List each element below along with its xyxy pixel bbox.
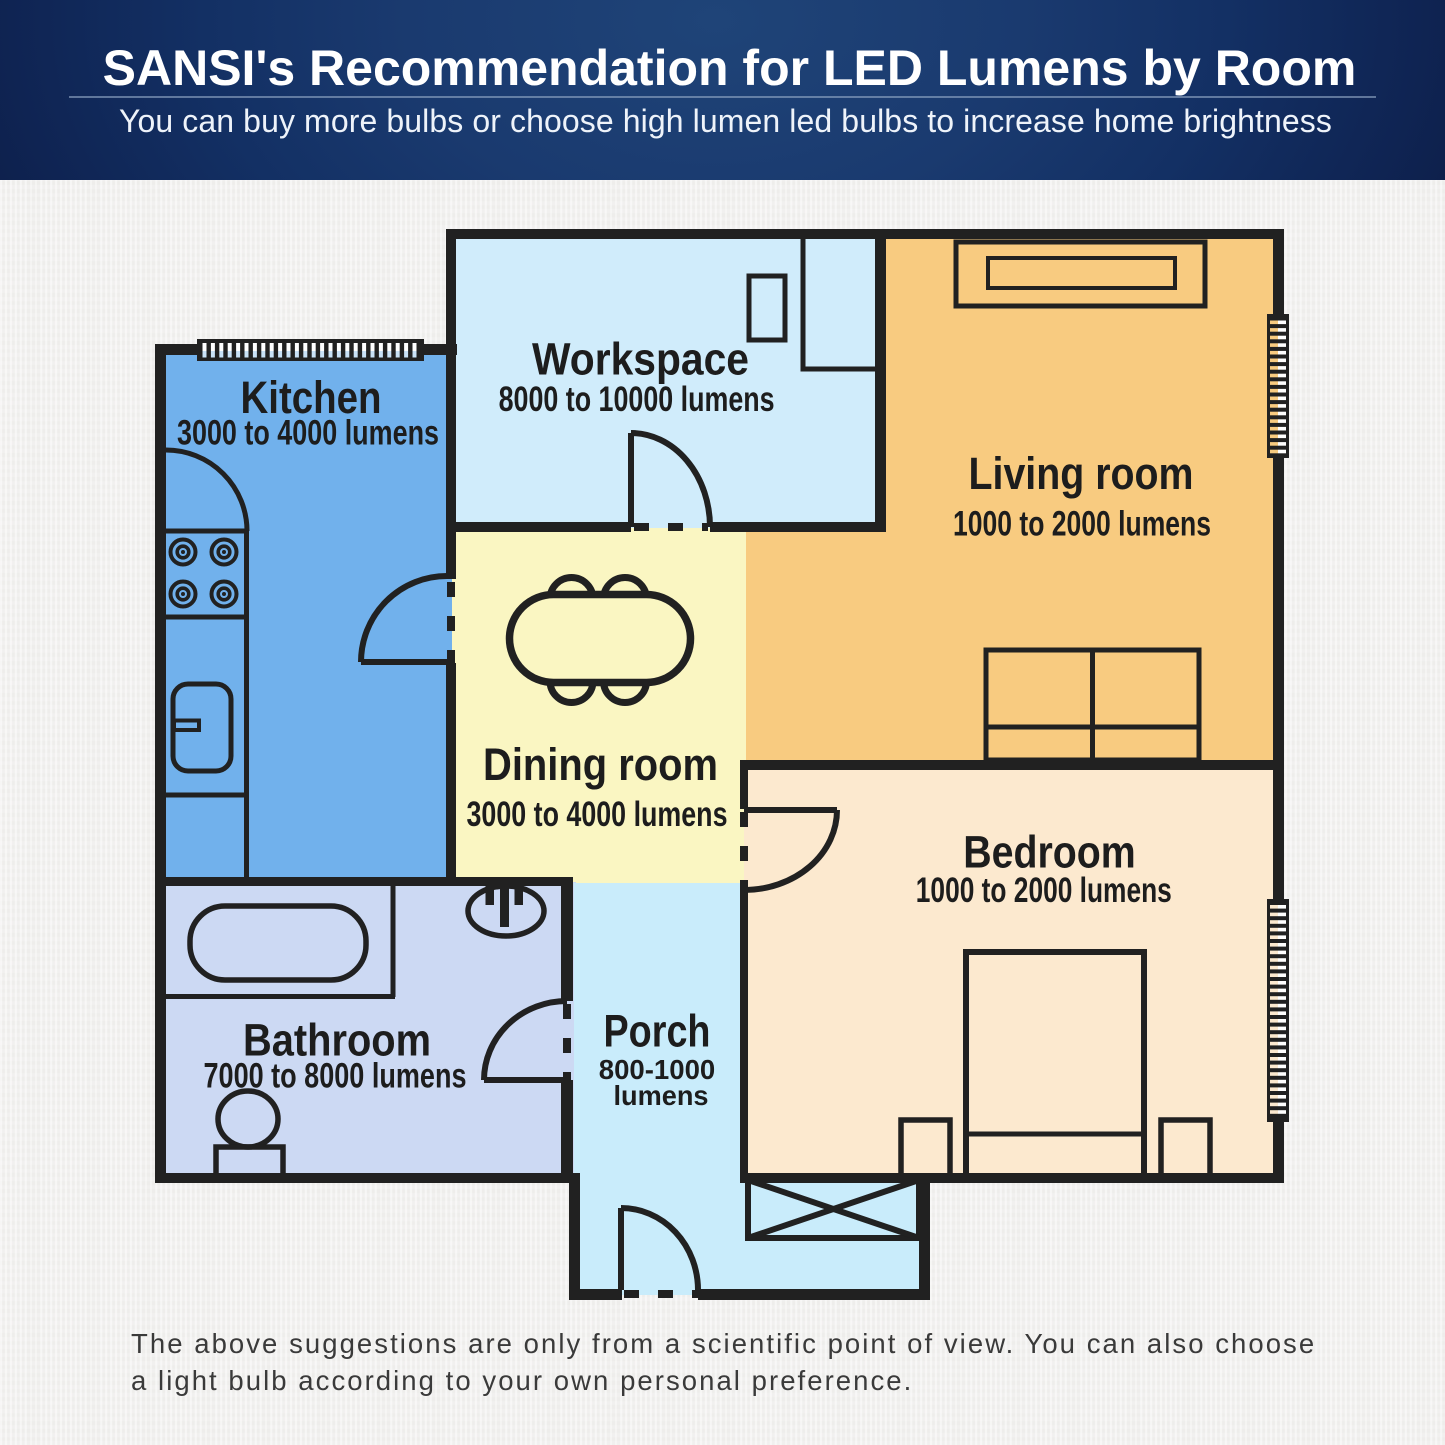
svg-text:Bedroom: Bedroom bbox=[963, 827, 1136, 878]
svg-text:7000 to 8000 lumens: 7000 to 8000 lumens bbox=[204, 1057, 467, 1096]
svg-text:3000 to 4000 lumens: 3000 to 4000 lumens bbox=[177, 413, 439, 452]
svg-text:Porch: Porch bbox=[604, 1005, 711, 1056]
svg-text:Workspace: Workspace bbox=[532, 333, 749, 384]
svg-text:1000 to 2000 lumens: 1000 to 2000 lumens bbox=[916, 871, 1172, 910]
svg-text:Dining room: Dining room bbox=[483, 739, 718, 790]
svg-text:lumens: lumens bbox=[614, 1080, 709, 1111]
svg-text:1000 to 2000 lumens: 1000 to 2000 lumens bbox=[953, 505, 1211, 544]
svg-text:3000 to 4000 lumens: 3000 to 4000 lumens bbox=[467, 795, 728, 834]
svg-text:8000 to 10000 lumens: 8000 to 10000 lumens bbox=[499, 380, 775, 419]
svg-text:Living room: Living room bbox=[969, 448, 1194, 499]
